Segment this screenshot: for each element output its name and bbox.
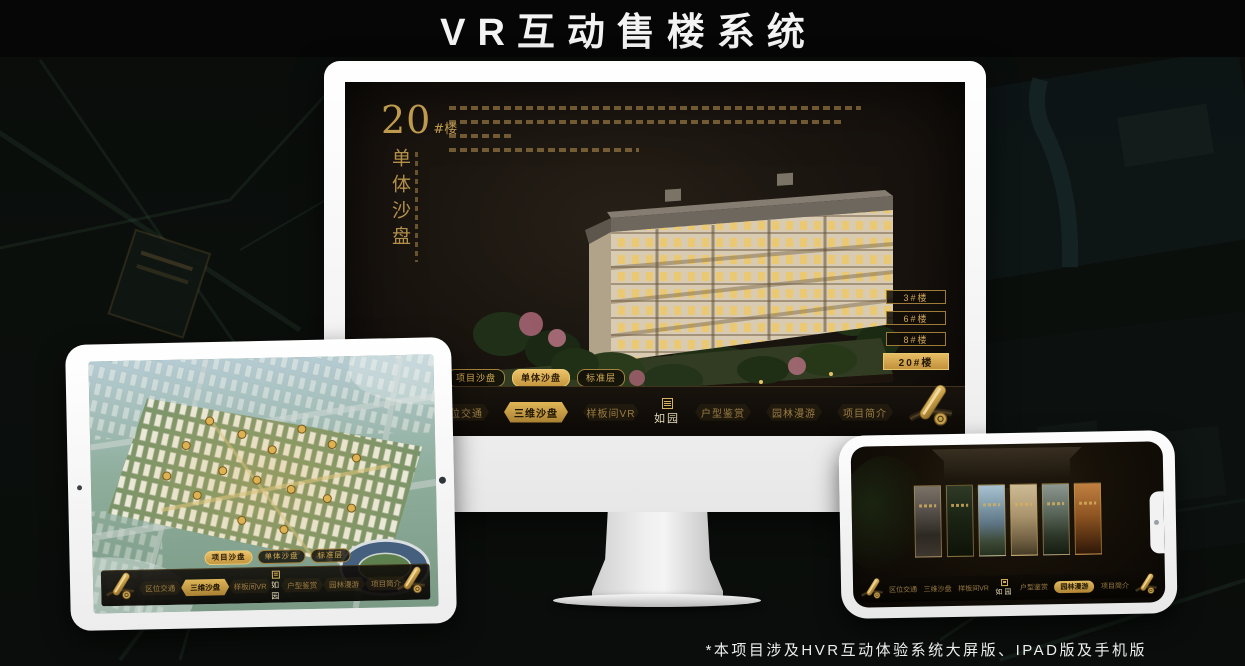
building-button-3[interactable]: 3#楼 xyxy=(886,290,946,304)
nav-item-project-intro[interactable]: 项目简介 xyxy=(1101,580,1129,590)
nav-item-3d-sandbox[interactable]: 三维沙盘 xyxy=(181,578,229,596)
scene-card-interior-green[interactable] xyxy=(946,485,974,557)
text-line xyxy=(449,148,639,152)
nav-item-garden-roam[interactable]: 园林漫游 xyxy=(323,577,365,592)
tab-single-sandbox[interactable]: 单体沙盘 xyxy=(512,369,570,387)
building-heading: 20#楼 xyxy=(381,98,457,142)
building-button-6[interactable]: 6#楼 xyxy=(886,311,946,325)
scroll-menu-icon[interactable] xyxy=(1133,570,1159,596)
building-render xyxy=(461,166,903,400)
building-button-20[interactable]: 20#楼 xyxy=(883,353,949,370)
poster-canvas: VR互动售楼系统 20#楼 单体沙盘 xyxy=(0,0,1245,666)
nav-item-location[interactable]: 区位交通 xyxy=(139,581,181,596)
brand-name: 如园 xyxy=(995,586,1013,596)
nav-item-floorplans[interactable]: 户型鉴赏 xyxy=(281,578,323,593)
phone-notch xyxy=(1149,491,1164,553)
camera-icon xyxy=(1154,519,1159,524)
nav-item-garden-roam[interactable]: 园林漫游 xyxy=(1054,580,1094,593)
brand-name: 如园 xyxy=(271,579,281,601)
tab-standard-floor[interactable]: 标准层 xyxy=(310,548,350,563)
nav-item-3d-sandbox[interactable]: 三维沙盘 xyxy=(924,583,952,593)
seal-icon xyxy=(272,570,280,578)
tab-project-sandbox[interactable]: 项目沙盘 xyxy=(447,369,505,387)
phone-screen: 区位交通 三维沙盘 样板间VR 如园 户型鉴赏 园林漫游 项目简介 xyxy=(851,441,1166,607)
brand-logo: 如园 xyxy=(271,570,282,601)
nav-item-showroom-vr[interactable]: 样板间VR xyxy=(229,579,271,594)
page-header: VR互动售楼系统 xyxy=(0,0,1245,57)
tab-project-sandbox[interactable]: 项目沙盘 xyxy=(204,550,252,565)
scroll-menu-icon[interactable] xyxy=(859,575,885,601)
scene-card-courtyard[interactable] xyxy=(914,485,942,557)
text-line xyxy=(449,106,861,110)
nav-item-project-intro[interactable]: 项目简介 xyxy=(837,404,893,421)
building-selector-panel: 3#楼 6#楼 8#楼 20#楼 xyxy=(883,290,949,370)
scroll-menu-icon[interactable] xyxy=(103,569,138,604)
text-line xyxy=(449,120,845,124)
scene-card-exterior-sky[interactable] xyxy=(978,484,1006,556)
sandbox-tabs: 项目沙盘 单体沙盘 标准层 xyxy=(447,369,625,387)
tablet-screen: 项目沙盘 单体沙盘 标准层 区位交通 三维沙盘 样板间VR 如园 户型鉴赏 园林… xyxy=(88,354,438,613)
brand-logo: 如园 xyxy=(995,578,1013,596)
scroll-menu-icon[interactable] xyxy=(394,563,429,598)
scene-card-interior-warm[interactable] xyxy=(1074,482,1102,554)
scene-card-building[interactable] xyxy=(1010,483,1038,555)
page-subtitle-vertical: 单体沙盘 xyxy=(387,148,414,252)
monitor-base xyxy=(553,594,761,607)
monitor-stand xyxy=(592,512,723,598)
description-paragraph xyxy=(449,106,861,162)
nav-item-garden-roam[interactable]: 园林漫游 xyxy=(766,404,822,421)
tablet-navbar: 区位交通 三维沙盘 样板间VR 如园 户型鉴赏 园林漫游 项目简介 xyxy=(101,563,431,606)
home-button[interactable] xyxy=(439,477,446,484)
nav-item-showroom-vr[interactable]: 样板间VR xyxy=(583,404,639,421)
nav-item-3d-sandbox[interactable]: 三维沙盘 xyxy=(504,402,568,423)
footnote-text: *本项目涉及HVR互动体验系统大屏版、IPAD版及手机版 xyxy=(706,639,1147,660)
building-button-8[interactable]: 8#楼 xyxy=(886,332,946,346)
building-number: 20 xyxy=(381,98,431,142)
brand-name: 如园 xyxy=(654,410,680,426)
phone-navbar: 区位交通 三维沙盘 样板间VR 如园 户型鉴赏 园林漫游 项目简介 xyxy=(859,572,1159,602)
nav-item-floorplans[interactable]: 户型鉴赏 xyxy=(1020,582,1048,592)
page-title: VR互动售楼系统 xyxy=(428,1,817,56)
camera-icon xyxy=(77,485,82,490)
phone-device: 区位交通 三维沙盘 样板间VR 如园 户型鉴赏 园林漫游 项目简介 xyxy=(838,430,1177,619)
nav-item-location[interactable]: 区位交通 xyxy=(889,584,917,594)
tablet-device: 项目沙盘 单体沙盘 标准层 区位交通 三维沙盘 样板间VR 如园 户型鉴赏 园林… xyxy=(65,337,457,631)
scene-card-row xyxy=(914,482,1102,557)
text-line xyxy=(449,134,515,138)
subtitle-english-decor xyxy=(415,152,418,262)
tab-single-sandbox[interactable]: 单体沙盘 xyxy=(257,549,305,564)
nav-item-floorplans[interactable]: 户型鉴赏 xyxy=(695,404,751,421)
seal-icon xyxy=(1001,579,1008,586)
tab-standard-floor[interactable]: 标准层 xyxy=(577,369,625,387)
seal-icon xyxy=(662,398,673,409)
nav-item-showroom-vr[interactable]: 样板间VR xyxy=(958,583,989,594)
scene-card-garden[interactable] xyxy=(1042,483,1070,555)
scroll-menu-icon[interactable] xyxy=(905,379,957,431)
brand-logo: 如园 xyxy=(654,398,680,426)
